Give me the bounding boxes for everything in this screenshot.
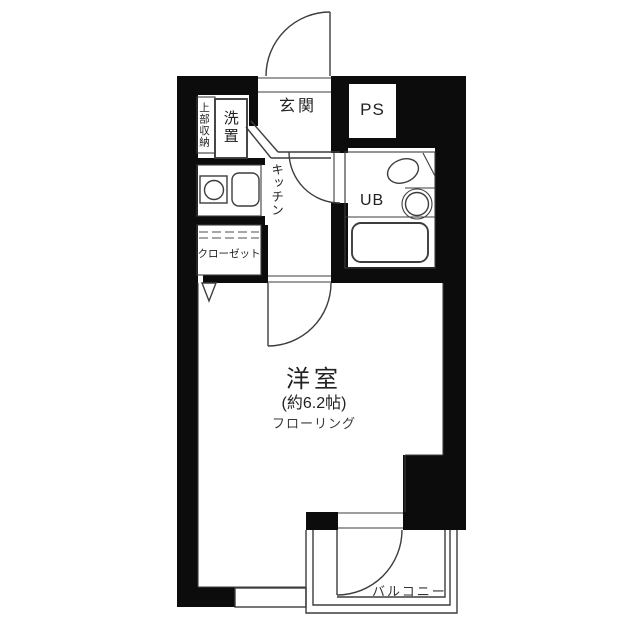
room-door: [268, 276, 331, 346]
kitchen-sink-icon: [232, 173, 259, 206]
kitchen-label: キッチン: [269, 163, 282, 217]
pipe-space-label: PS: [349, 101, 396, 119]
triangle-marker-icon: [202, 283, 216, 301]
sink-icon: [406, 193, 429, 216]
side-walkway: [235, 588, 306, 607]
bath-door-arc: [289, 152, 340, 203]
closet-label: クローゼット: [197, 249, 261, 260]
toilet-icon: [384, 154, 422, 187]
balcony-label: バルコニー: [372, 585, 447, 599]
unit-bath-fixtures: [345, 152, 435, 268]
room-size-label: (約6.2帖): [254, 396, 374, 413]
sink-rim-icon: [402, 189, 432, 219]
genkan-step-lines: [246, 121, 340, 158]
room-label: 洋室: [254, 367, 374, 392]
entrance-door-arc: [266, 12, 330, 76]
unit-bath-label: UB: [360, 193, 384, 210]
entrance-door: [258, 12, 331, 92]
bath-door: [289, 152, 345, 203]
kitchen-counter: [197, 165, 261, 216]
room-flooring-label: フローリング: [254, 417, 374, 431]
washer-place-label: 洗置: [222, 110, 238, 146]
bathtub-icon: [352, 223, 428, 262]
floor-plan: 玄関 PS 上部収納 洗置 キッチン UB クローゼット 洋室 (約6.2帖) …: [0, 0, 640, 640]
room-door-arc: [268, 283, 331, 346]
balcony-door: [337, 513, 403, 595]
entrance-label: 玄関: [266, 99, 330, 116]
burner-icon: [205, 181, 224, 200]
balcony-railing: [235, 530, 457, 613]
wall-structure: [177, 76, 466, 607]
upper-storage-label: 上部収納: [198, 102, 209, 148]
room-edge-lines: [198, 283, 443, 587]
floor-plan-drawing: [0, 0, 640, 640]
